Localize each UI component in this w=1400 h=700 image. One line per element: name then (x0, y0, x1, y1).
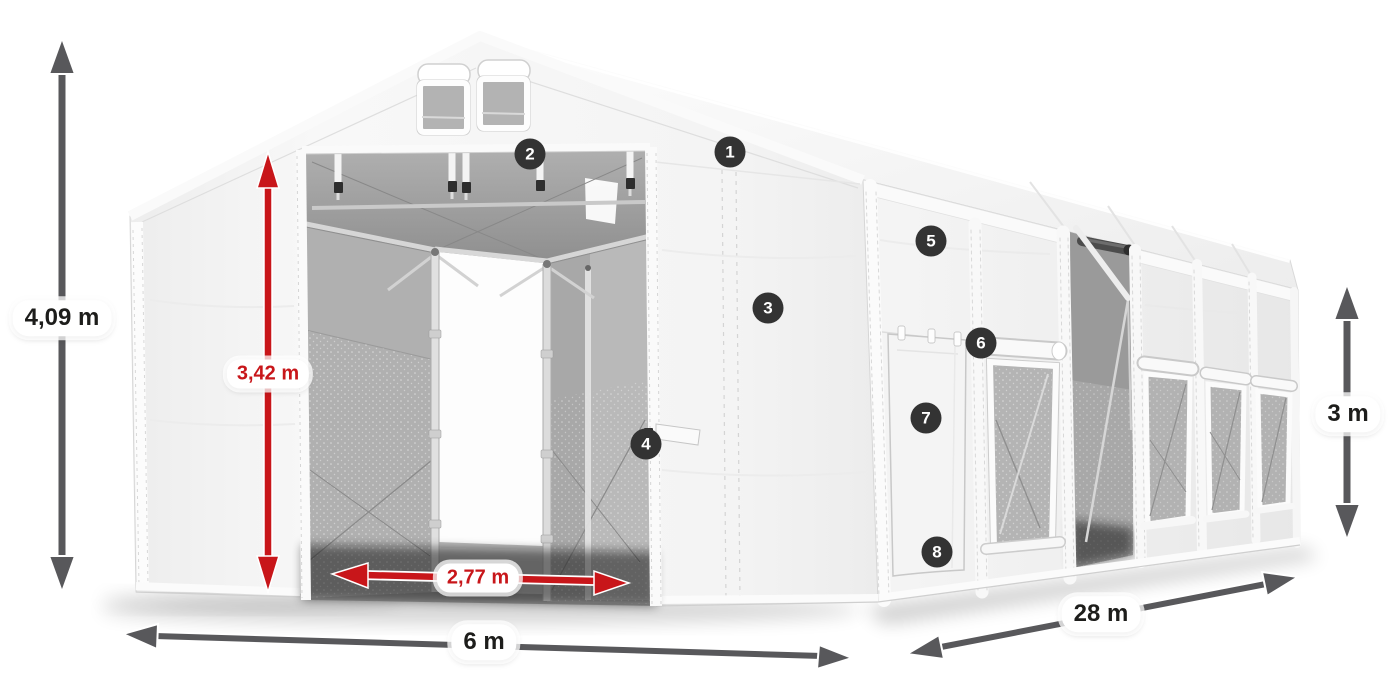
side-window-front (980, 337, 1066, 549)
side-door-opening (1070, 228, 1135, 568)
tent-illustration (0, 0, 1400, 700)
side-windows-rear (1144, 363, 1292, 526)
side-height-label: 3 m (1315, 396, 1380, 432)
feature-badge-7[interactable]: 7 (911, 403, 942, 434)
feature-badge-2[interactable]: 2 (515, 139, 546, 170)
front-entrance-opening (297, 147, 700, 606)
gable-window-right (477, 60, 530, 131)
feature-badge-1[interactable]: 1 (715, 137, 746, 168)
entrance-width-label: 2,77 m (437, 564, 519, 593)
gable-window-left (417, 64, 470, 135)
tent-dimension-diagram: 4,09 m 3,42 m 2,77 m 6 m 28 m 3 m 1 2 3 … (0, 0, 1400, 700)
feature-badge-4[interactable]: 4 (631, 429, 662, 460)
tent-length-label: 28 m (1062, 596, 1141, 632)
window-roll-bar (988, 346, 1058, 351)
feature-badge-8[interactable]: 8 (922, 537, 953, 568)
feature-badge-3[interactable]: 3 (753, 293, 784, 324)
tent-width-label: 6 m (451, 624, 516, 660)
total-height-label: 4,09 m (13, 300, 112, 336)
entrance-height-label: 3,42 m (227, 360, 309, 389)
feature-badge-5[interactable]: 5 (916, 226, 947, 257)
feature-badge-6[interactable]: 6 (966, 328, 997, 359)
